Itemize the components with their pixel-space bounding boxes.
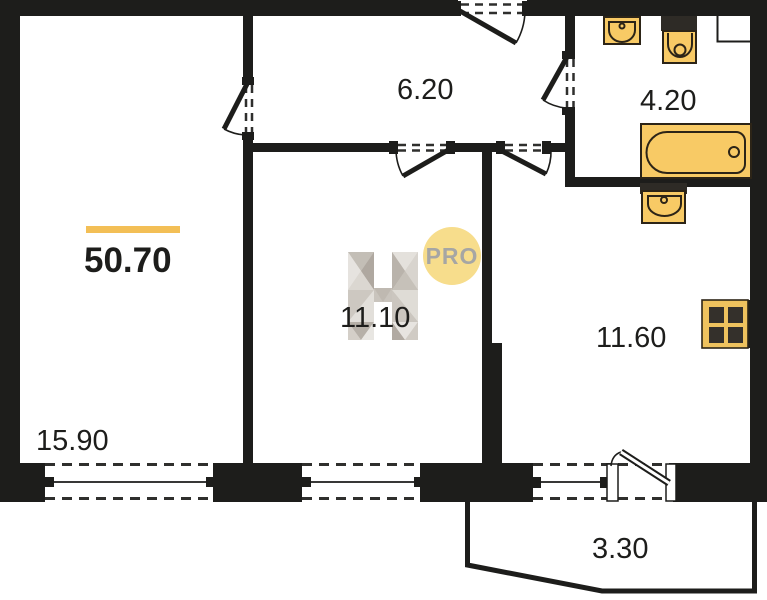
floor-plan-drawing: PRO	[0, 0, 767, 600]
bedroom-door-leaf	[403, 149, 450, 176]
kitchen-door-leaf	[500, 150, 546, 174]
bathtub	[641, 124, 751, 178]
room-label-kitchen: 11.60	[596, 322, 666, 354]
bathroom-door-arc	[543, 100, 566, 108]
accent-line	[86, 226, 180, 233]
washbasin	[604, 17, 640, 44]
room-label-bathroom: 4.20	[640, 85, 696, 117]
total-area-label: 50.70	[84, 241, 172, 280]
toilet	[661, 16, 697, 63]
bathroom-door-leaf	[543, 57, 567, 100]
living-room-door-arc	[224, 129, 245, 135]
entrance-door-arc	[516, 12, 525, 43]
room-label-bedroom: 11.10	[340, 302, 410, 334]
balcony-door	[607, 452, 676, 501]
room-label-hallway: 6.20	[397, 74, 453, 106]
total-area: 50.70	[84, 226, 180, 280]
room-label-living-room: 15.90	[36, 425, 109, 457]
pro-badge-label: PRO	[426, 243, 479, 269]
vent-niche	[717, 16, 750, 42]
balcony-door-leaf-inner	[621, 452, 669, 483]
floor-plan: PRO	[0, 0, 767, 600]
room-label-balcony: 3.30	[592, 533, 648, 565]
kitchen-sink	[640, 183, 687, 223]
balcony-door-jamb-left	[607, 464, 618, 501]
stove	[702, 300, 752, 348]
entrance-door-leaf	[460, 11, 516, 43]
living-room-door-leaf	[224, 84, 247, 129]
